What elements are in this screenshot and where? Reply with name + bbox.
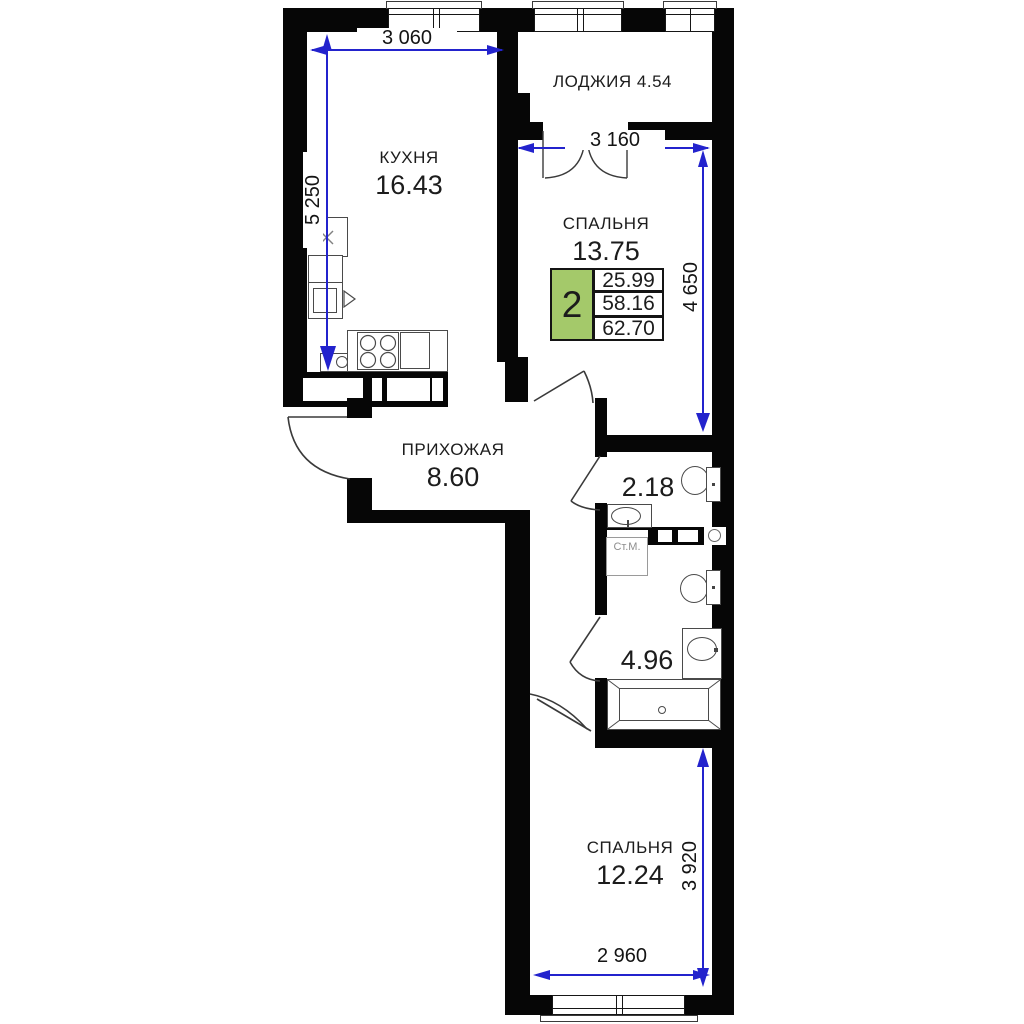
wall-kitchen-right [497, 30, 518, 362]
dim-text-bedroom1-width: 3 160 [565, 130, 665, 150]
loggia-window-2 [665, 8, 715, 32]
label-bathroom-area: 4.96 [607, 645, 687, 676]
toilet-tank-dot [712, 483, 715, 486]
sink-bowl [687, 637, 717, 661]
kitchen-counter [327, 217, 348, 257]
dim-text-kitchen-depth: 5 250 [303, 152, 323, 248]
pipe-icon [708, 529, 721, 542]
wall-bedroom1-bottom [595, 435, 734, 452]
wall-duct-opening [678, 530, 698, 542]
sink-bowl [611, 507, 641, 525]
fridge-pointer [344, 291, 355, 307]
label-bedroom2: СПАЛЬНЯ 12.24 [565, 838, 695, 891]
info-rooms-count: 2 [550, 268, 594, 341]
wall-loggia-bottom-left [510, 122, 543, 140]
bedroom2-door [530, 694, 591, 731]
floor-plan: Ст.М. [0, 0, 1024, 1024]
sink-faucet [627, 520, 629, 527]
vent-opening [372, 378, 382, 401]
wall-bedroom2-top [595, 728, 734, 748]
toilet-icon [680, 574, 708, 603]
wc-door [571, 456, 600, 510]
fridge-inner [313, 288, 337, 313]
stove [357, 332, 399, 370]
label-hallway: ПРИХОЖАЯ 8.60 [388, 440, 518, 493]
washing-machine: Ст.М. [606, 537, 648, 576]
info-total-area: 62.70 [593, 316, 664, 341]
dim-bedroom2-width [533, 970, 710, 980]
bathtub-drain [658, 706, 666, 714]
room-name: КУХНЯ [344, 148, 474, 168]
bathtub-inner [619, 688, 709, 721]
room-area: 13.75 [541, 236, 671, 267]
wall-bedroom1-left-block [505, 357, 528, 402]
vent-opening [387, 378, 430, 401]
room-name: СПАЛЬНЯ [565, 838, 695, 858]
wall-lower-left [505, 510, 530, 1015]
label-bedroom1: СПАЛЬНЯ 13.75 [541, 214, 671, 267]
wall-right [712, 8, 734, 1015]
dim-text-bedroom1-depth: 4 650 [681, 239, 701, 335]
wall-entry-stub-top [347, 398, 372, 418]
wall-duct-opening [658, 530, 672, 542]
entrance-door [288, 417, 350, 479]
room-area: 4.54 [637, 72, 672, 91]
kitchen-counter [308, 255, 343, 283]
washing-machine-label: Ст.М. [607, 541, 647, 553]
room-area: 16.43 [344, 170, 474, 201]
dim-text-kitchen-width: 3 060 [357, 28, 457, 48]
label-kitchen: КУХНЯ 16.43 [344, 148, 474, 201]
loggia-window-1 [534, 8, 622, 32]
wall-wc-left-bottom [595, 503, 607, 530]
vent-opening [432, 378, 443, 401]
bedroom1-door [534, 371, 593, 403]
room-area: 12.24 [565, 860, 695, 891]
label-wc-area: 2.18 [608, 472, 688, 503]
room-name: ПРИХОЖАЯ [388, 440, 518, 460]
room-area: 8.60 [388, 462, 518, 493]
wall-hall-bottom [347, 510, 530, 523]
info-area: 58.16 [593, 291, 664, 317]
info-living-area: 25.99 [593, 268, 664, 292]
dishwasher-knob [336, 356, 348, 368]
wall-wc-left-top [595, 398, 607, 457]
sink-faucet [714, 648, 718, 652]
window-sill [540, 1015, 698, 1022]
room-name: СПАЛЬНЯ [541, 214, 671, 234]
kitchen-sink-unit [400, 332, 430, 369]
bathroom-door [570, 617, 600, 681]
toilet-tank-dot [712, 586, 715, 589]
label-loggia: ЛОДЖИЯ 4.54 [535, 72, 690, 92]
room-name: ЛОДЖИЯ [553, 72, 632, 91]
dim-text-bedroom2-width: 2 960 [572, 946, 672, 966]
bedroom2-window [552, 995, 685, 1015]
